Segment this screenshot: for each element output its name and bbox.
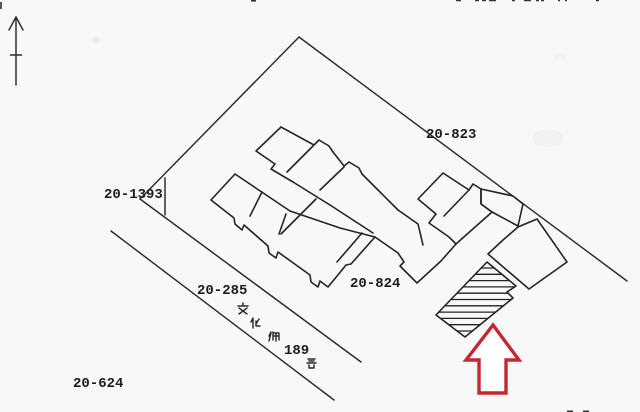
svg-text:20-285: 20-285: [197, 283, 247, 299]
svg-text:20-824: 20-824: [350, 276, 400, 292]
svg-text:189: 189: [284, 343, 309, 359]
svg-text:20-624: 20-624: [73, 376, 123, 392]
svg-text:20-1393: 20-1393: [104, 187, 163, 203]
svg-text:20-823: 20-823: [426, 127, 476, 143]
